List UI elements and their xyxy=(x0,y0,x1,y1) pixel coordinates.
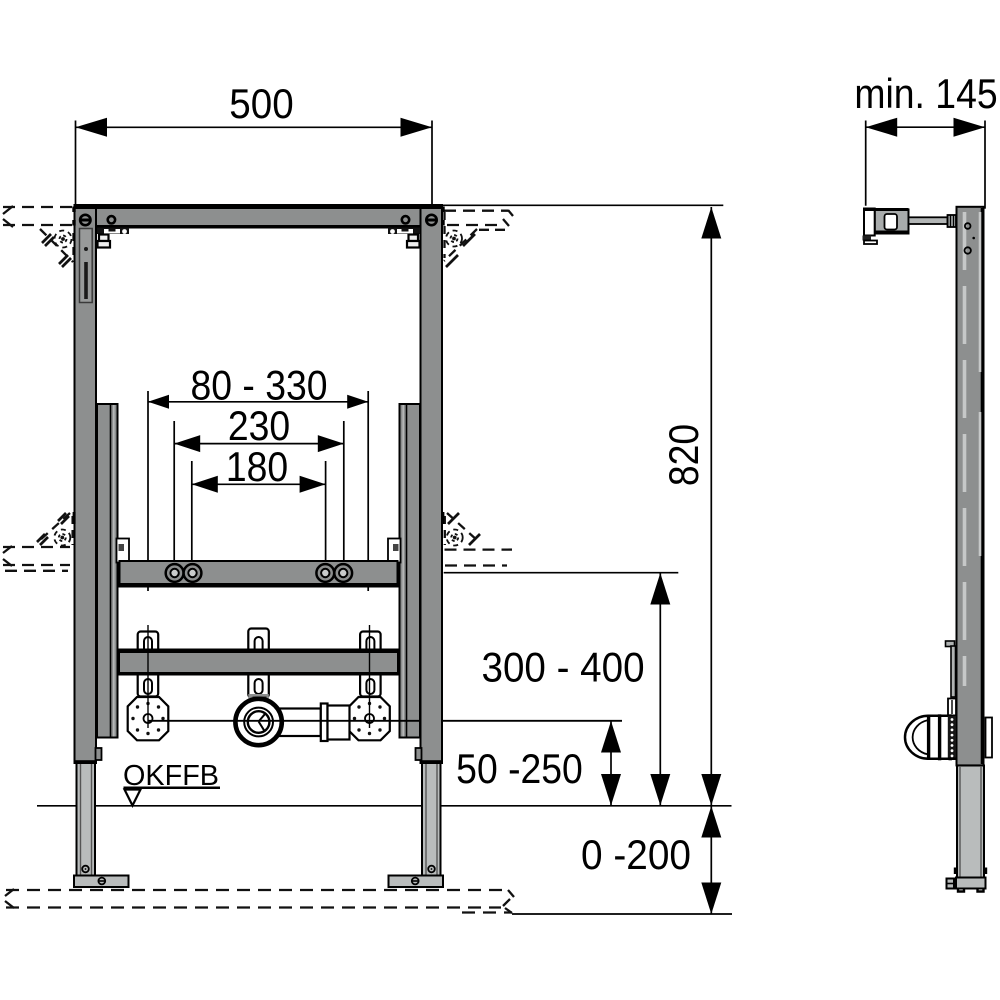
svg-text:820: 820 xyxy=(661,424,707,486)
svg-text:min. 145: min. 145 xyxy=(854,71,997,117)
svg-text:180: 180 xyxy=(226,444,288,490)
svg-text:80 - 330: 80 - 330 xyxy=(190,363,327,409)
svg-text:230: 230 xyxy=(228,403,290,449)
svg-text:50 -250: 50 -250 xyxy=(456,746,583,792)
svg-text:500: 500 xyxy=(229,82,293,128)
svg-text:0 -200: 0 -200 xyxy=(581,832,691,878)
svg-text:300 - 400: 300 - 400 xyxy=(481,645,644,691)
